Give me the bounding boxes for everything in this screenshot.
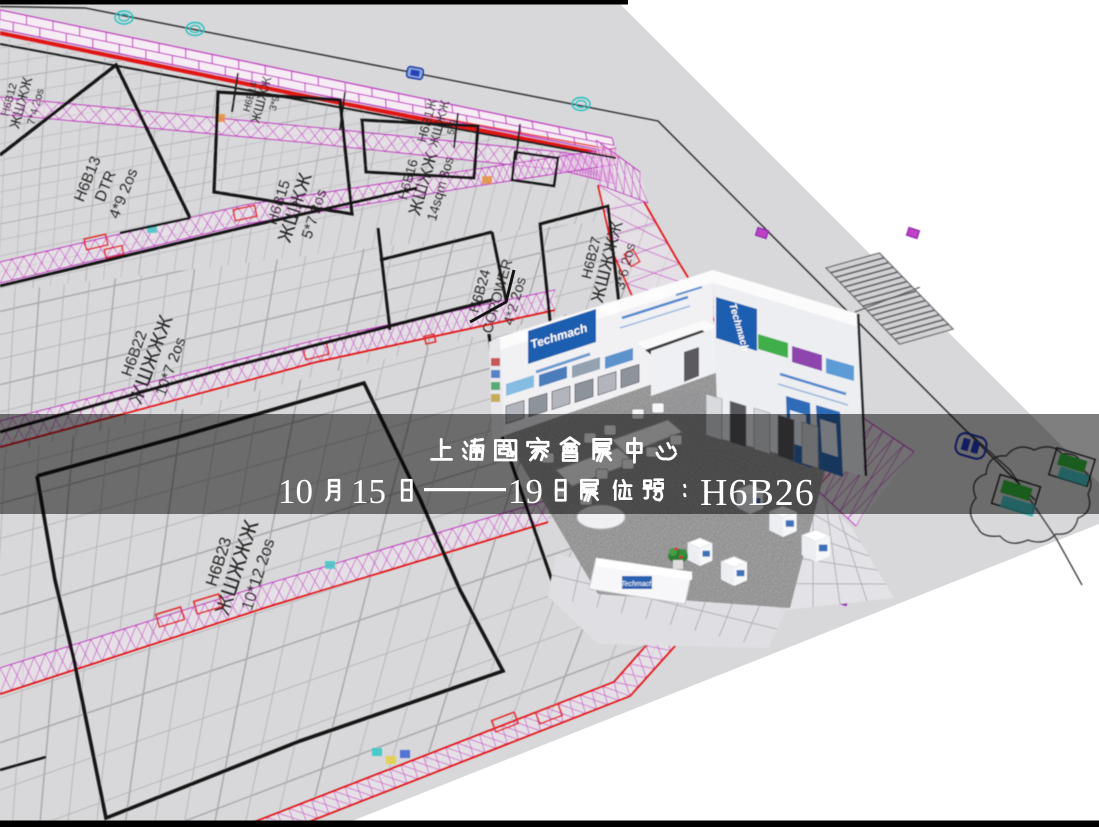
svg-text:10: 10 bbox=[278, 472, 313, 511]
svg-text:19: 19 bbox=[508, 472, 543, 511]
svg-text:Techmach: Techmach bbox=[621, 581, 653, 588]
svg-text:15: 15 bbox=[351, 472, 386, 511]
svg-text:H6B26: H6B26 bbox=[700, 472, 815, 514]
